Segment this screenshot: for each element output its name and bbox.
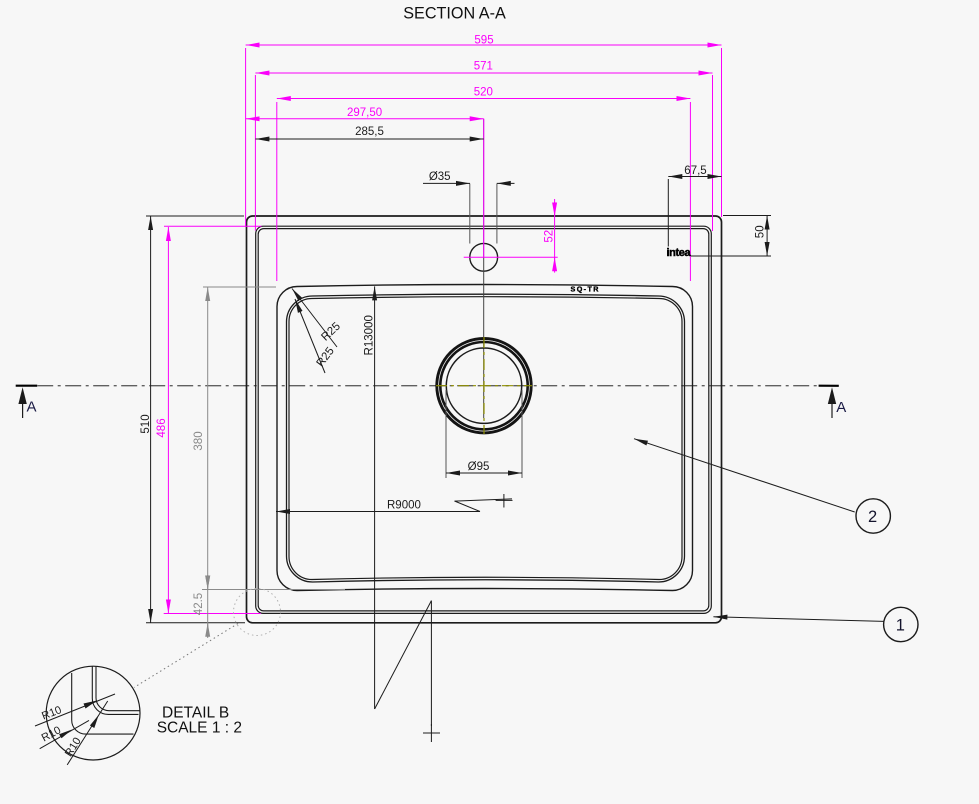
svg-text:R9000: R9000 [387,500,421,512]
svg-text:50: 50 [754,225,766,238]
svg-text:595: 595 [474,34,493,46]
svg-text:285,5: 285,5 [355,126,384,138]
svg-text:R25: R25 [319,320,343,343]
svg-text:SECTION A-A: SECTION A-A [403,4,506,22]
svg-text:R13000: R13000 [363,315,375,355]
svg-text:R10: R10 [63,735,84,758]
svg-text:SCALE 1 : 2: SCALE 1 : 2 [157,720,242,737]
svg-text:380: 380 [193,431,205,450]
svg-text:486: 486 [156,418,168,437]
svg-text:67,5: 67,5 [684,165,706,177]
svg-text:297,50: 297,50 [347,107,382,119]
svg-text:A: A [836,399,846,416]
svg-text:Ø95: Ø95 [468,461,490,473]
svg-text:1: 1 [896,616,905,634]
svg-text:42.5: 42.5 [193,593,205,615]
svg-text:52: 52 [544,230,556,243]
svg-text:A: A [27,399,37,416]
svg-text:Ø35: Ø35 [429,171,451,183]
svg-text:R10: R10 [40,724,63,744]
svg-text:intea: intea [667,247,692,259]
svg-text:571: 571 [474,61,493,73]
svg-text:SQ-TR: SQ-TR [571,284,600,293]
svg-text:520: 520 [474,87,493,99]
svg-text:510: 510 [140,414,152,433]
svg-text:R25: R25 [315,345,337,369]
svg-text:2: 2 [868,508,877,526]
